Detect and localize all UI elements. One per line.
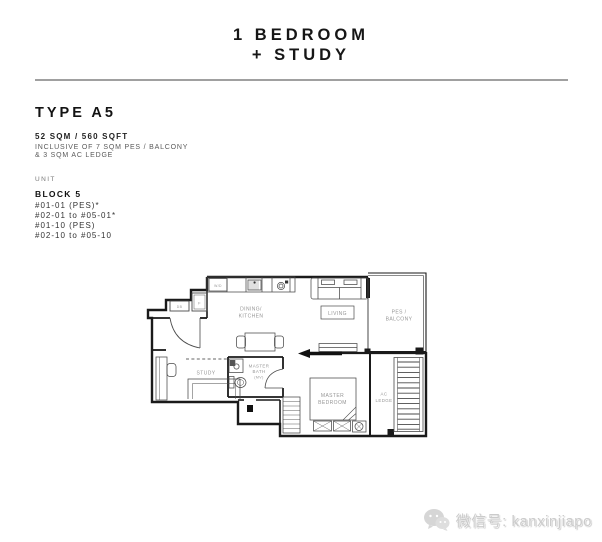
room-label-balcony-1: PES / [392,310,407,316]
study-desk [188,379,240,399]
floor-plan-svg: W/D DB F DINING/ KITCHEN LIVING PES / BA… [146,264,432,444]
entry-door-arc [170,318,200,348]
room-label-bedroom-1: MASTER [321,393,344,399]
title-line-1: 1 BEDROOM [0,25,602,45]
stove [277,282,284,289]
area-inclusive-line2: & 3 SQM AC LEDGE [35,152,188,161]
type-name: TYPE A5 [35,105,188,121]
unit-number: #01-10 (PES) [35,221,188,231]
room-label-ledge-2: LEDGE [376,398,393,403]
floor-plan: W/D DB F DINING/ KITCHEN LIVING PES / BA… [146,264,432,444]
bath-door-arc [265,369,283,388]
sink-faucet [253,281,255,283]
block-name: BLOCK 5 [35,189,188,199]
page-title: 1 BEDROOM + STUDY [0,25,602,65]
watermark-text: 微信号: kanxinjiapo [456,510,592,531]
unit-label: UNIT [35,176,188,183]
stove-knob [285,281,288,284]
washer-dryer-label: W/D [214,284,222,288]
tv-console [319,344,357,352]
vanity-basin [230,360,236,366]
room-label-dining-1: DINING/ [240,307,262,313]
bedside-table [353,421,367,432]
study-chair [167,364,176,377]
sofa [311,278,368,299]
water-heater [247,405,253,412]
wall-lines [148,273,426,436]
ac-ledge-hatch [394,358,423,432]
room-label-study: STUDY [197,371,216,377]
dining-chair [237,336,246,348]
room-label-ledge-1: AC [381,392,388,397]
unit-number: #02-10 to #05-10 [35,231,188,241]
toilet [229,377,246,389]
unit-number-list: #01-01 (PES)* #02-01 to #05-01* #01-10 (… [35,201,188,241]
floorplan-page: 1 BEDROOM + STUDY TYPE A5 52 SQM / 560 S… [0,0,602,542]
title-line-2: + STUDY [0,45,602,65]
unit-number: #01-01 (PES)* [35,201,188,211]
study-cabinet [156,357,167,400]
room-label-bedroom-2: BEDROOM [318,400,347,406]
header-divider [35,79,568,81]
bed [310,378,356,420]
unit-number: #02-01 to #05-01* [35,211,188,221]
room-label-bath-1: MASTER [249,364,270,369]
room-label-dining-2: KITCHEN [239,314,264,320]
wardrobe [283,397,300,433]
db-label: DB [177,305,183,309]
fridge-label: F [198,301,201,306]
watermark: 微信号: kanxinjiapo [423,508,592,532]
room-label-bath-3: (MV) [254,376,263,380]
pillows [314,421,351,431]
dining-table [237,333,284,351]
entrance-arrow [298,349,342,358]
room-label-bath-2: BATH [253,369,266,374]
room-label-living: LIVING [328,311,347,317]
wechat-icon [423,508,450,532]
dining-chair [275,336,284,348]
area-inclusive-line1: INCLUSIVE OF 7 SQM PES / BALCONY [35,144,188,153]
unit-area: 52 SQM / 560 SQFT [35,132,188,141]
room-label-balcony-2: BALCONY [386,317,413,323]
unit-info-panel: TYPE A5 52 SQM / 560 SQFT INCLUSIVE OF 7… [35,105,188,241]
